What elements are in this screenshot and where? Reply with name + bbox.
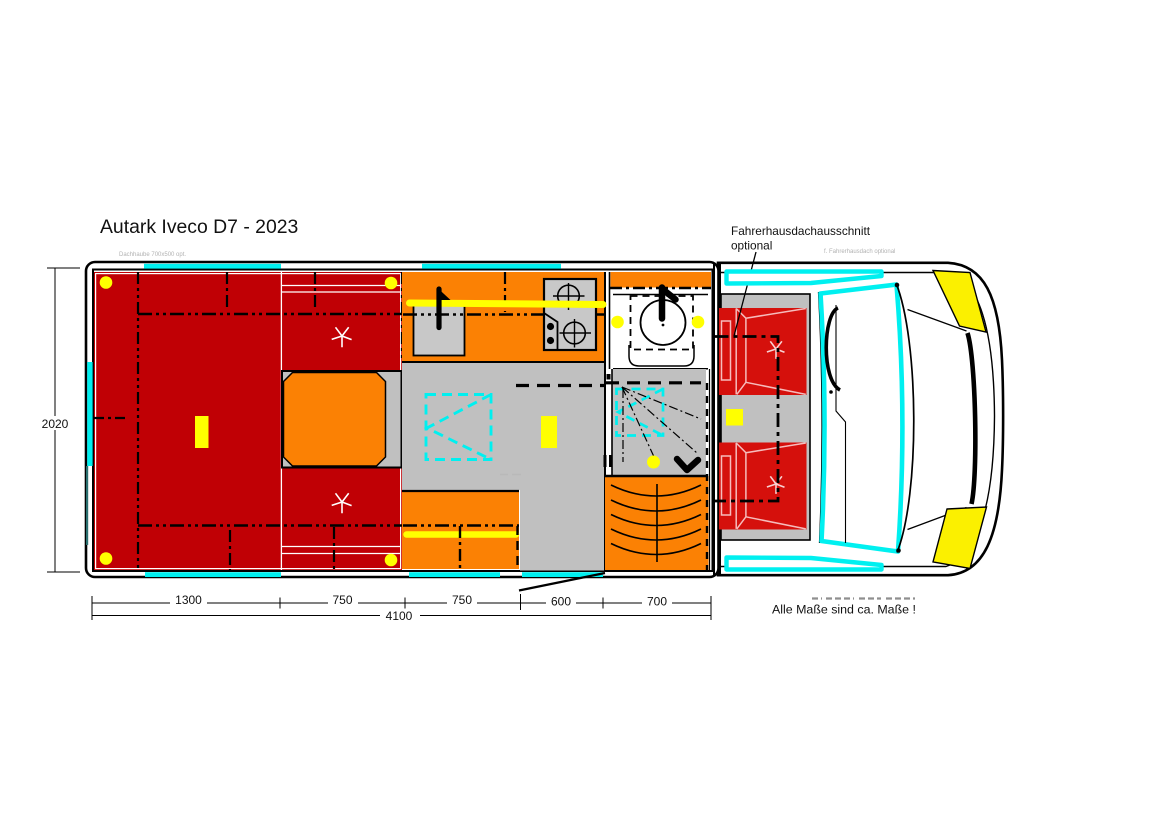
svg-text:2020: 2020	[42, 417, 69, 431]
svg-text:optional: optional	[731, 239, 772, 253]
svg-text:600: 600	[551, 595, 571, 609]
svg-text:Alle Maße sind ca. Maße !: Alle Maße sind ca. Maße !	[772, 603, 916, 617]
svg-text:700: 700	[647, 595, 667, 609]
svg-text:4100: 4100	[386, 609, 413, 623]
svg-text:750: 750	[452, 593, 472, 607]
svg-text:Dachhaube 700x500 opt.: Dachhaube 700x500 opt.	[119, 252, 186, 258]
svg-text:Autark Iveco D7 - 2023: Autark Iveco D7 - 2023	[100, 216, 298, 238]
svg-text:750: 750	[332, 593, 352, 607]
svg-text:1300: 1300	[175, 593, 202, 607]
svg-text:Fahrerhausdachausschnitt: Fahrerhausdachausschnitt	[731, 224, 871, 238]
svg-text:f. Fahrerhausdach optional: f. Fahrerhausdach optional	[824, 249, 895, 255]
